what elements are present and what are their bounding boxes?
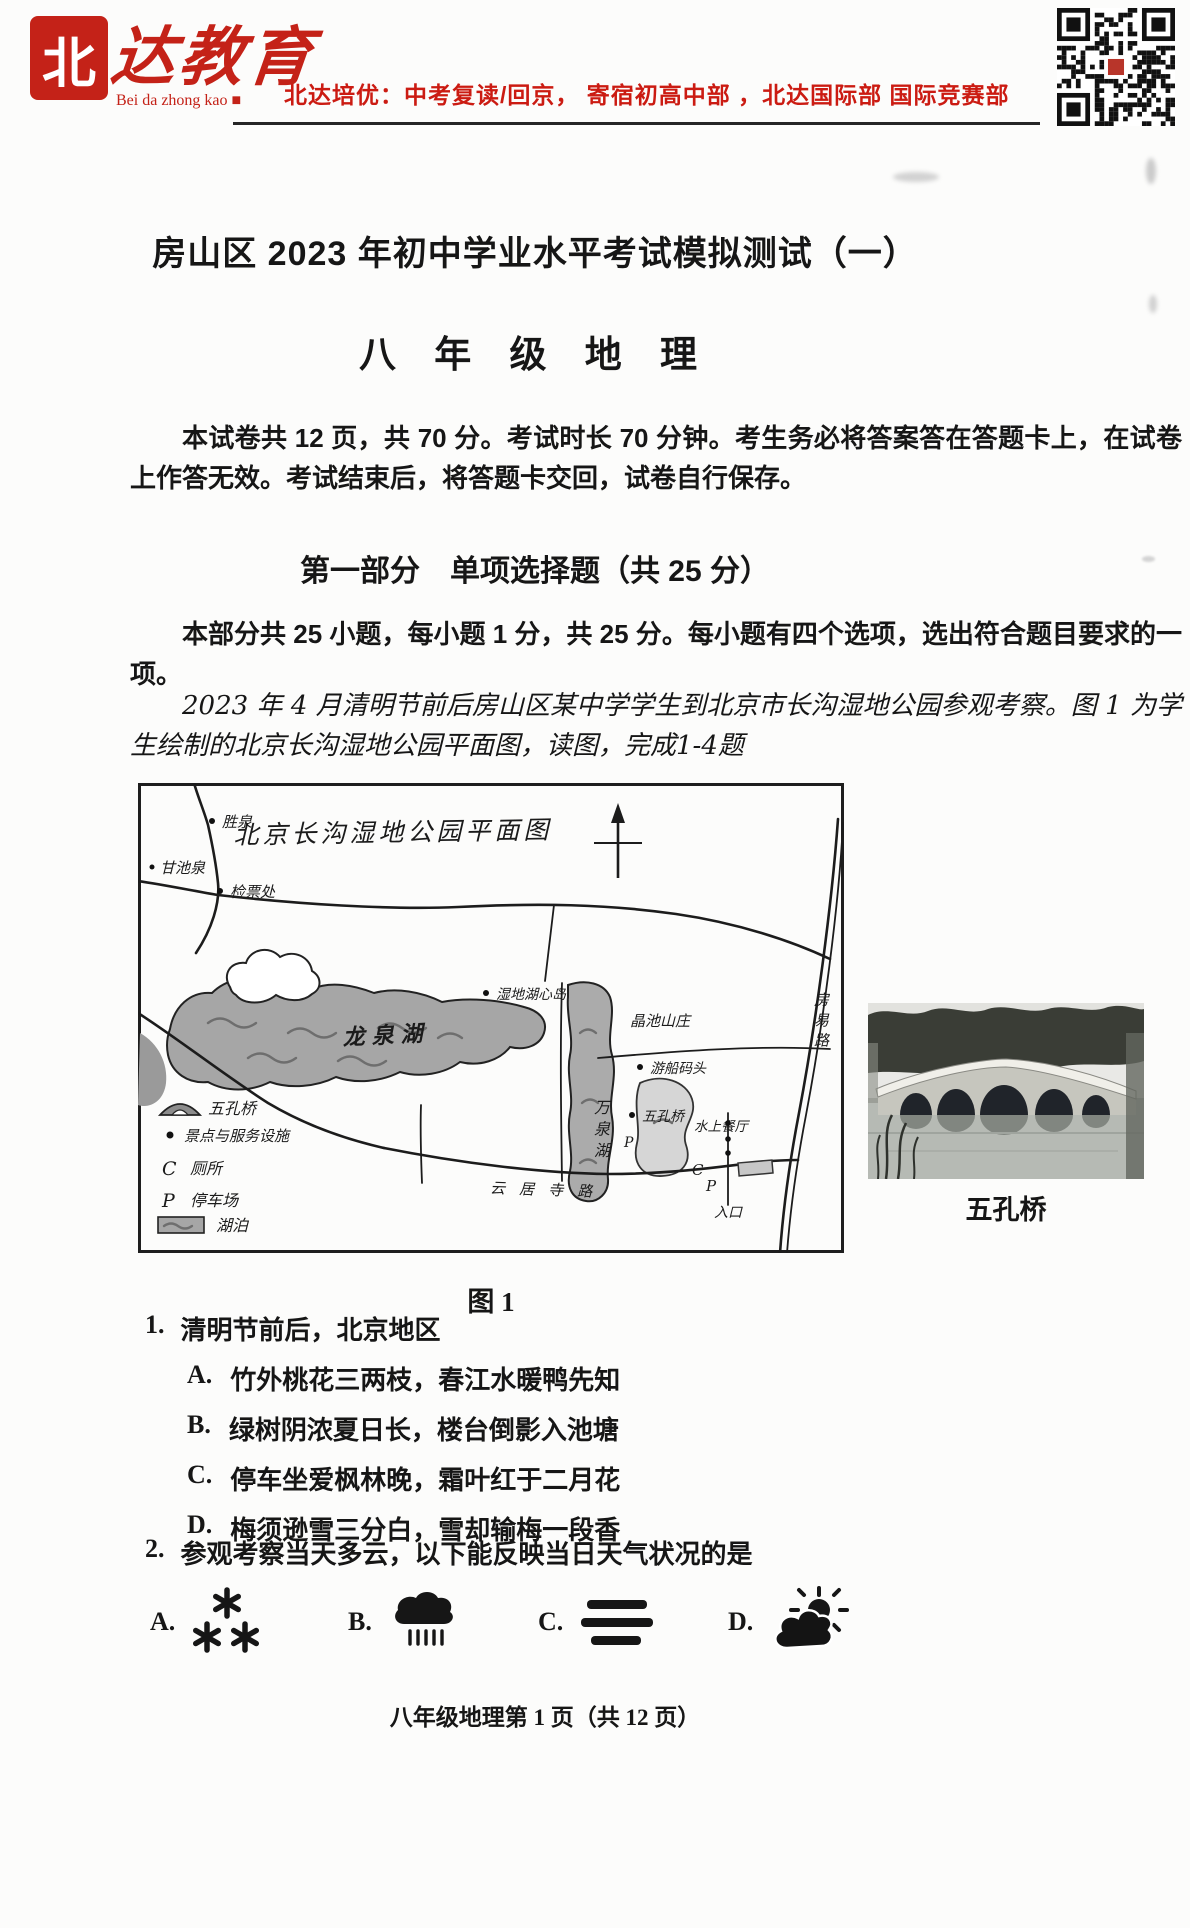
context-paragraph: 2023 年 4 月清明节前后房山区某中学学生到北京市长沟湿地公园参观考察。图 … (130, 686, 1182, 766)
question-1: 1. 清明节前后，北京地区 A. 竹外桃花三两枝，春江水暖鸭先知 B. 绿树阴浓… (145, 1310, 1145, 1547)
legend-toilet-label: 厕所 (190, 1159, 225, 1178)
header-divider (233, 122, 1040, 125)
option-c: C. 停车坐爱枫林晚，霜叶红于二月花 (187, 1460, 1145, 1497)
map-label-ganchi-spring: 甘池泉 (160, 859, 206, 877)
option-a: A. 竹外桃花三两枝，春江水暖鸭先知 (187, 1360, 1145, 1397)
scan-smudge (1146, 158, 1156, 184)
option-text: 竹外桃花三两枝，春江水暖鸭先知 (230, 1360, 620, 1397)
page-footer: 八年级地理第 1 页（共 12 页） (130, 1698, 960, 1732)
map-label-yunjusi-road: 云居寺路 (490, 1179, 607, 1201)
map-label-longquan-lake: 龙泉湖 (342, 1020, 430, 1051)
scan-smudge (1149, 295, 1157, 313)
option-key: B. (348, 1607, 372, 1637)
map-label-ticket-gate: 检票处 (230, 883, 276, 901)
legend-bridge-label: 五孔桥 (208, 1099, 258, 1118)
question-stem: 参观考察当天多云，以下能反映当日天气状况的是 (181, 1534, 753, 1571)
photo-caption: 五孔桥 (868, 1188, 1144, 1227)
legend-poi-label: 景点与服务设施 (184, 1127, 291, 1145)
fog-icon (575, 1586, 659, 1658)
snow-icon (187, 1586, 271, 1658)
boundary (421, 1105, 422, 1183)
scan-smudge (893, 172, 939, 182)
bridge-photo-image (868, 1003, 1144, 1179)
partly-cloudy-icon (765, 1586, 849, 1658)
option-key: D. (728, 1607, 753, 1637)
boundary (598, 1048, 830, 1058)
option-text: 绿树阴浓夏日长，楼台倒影入池塘 (229, 1410, 619, 1447)
map-label-toilet-c: C (692, 1161, 704, 1179)
brand-seal-char: 北 (42, 19, 96, 98)
map-label-five-arch-bridge: 五孔桥 (642, 1109, 686, 1125)
question-number: 2. (145, 1534, 165, 1571)
road (218, 895, 830, 959)
legend-c-icon: C (162, 1158, 177, 1180)
option-b: B. 绿树阴浓夏日长，楼台倒影入池塘 (187, 1410, 1145, 1447)
exam-subject: 八 年 级 地 理 (130, 324, 940, 378)
question-stem: 清明节前后，北京地区 (181, 1310, 441, 1347)
island-shape (227, 950, 320, 1003)
map-label-spring: 胜泉 (222, 813, 253, 831)
map-label-fangyi-road: 房易路 (814, 991, 831, 1050)
map-title: 北京长沟湿地公园平面图 (233, 815, 552, 850)
qr-code (1057, 8, 1175, 126)
scan-smudge (1142, 556, 1155, 562)
map-label-island: 湿地湖心岛 (496, 987, 567, 1003)
rain-icon (384, 1586, 468, 1658)
option-key: C. (187, 1460, 212, 1497)
brand-seal: 北 (30, 16, 108, 100)
question-2: 2. 参观考察当天多云，以下能反映当日天气状况的是 (145, 1534, 1145, 1571)
legend-p-icon: P (161, 1190, 176, 1212)
map-label-villa: 晶池山庄 (630, 1012, 692, 1030)
map-label-entrance: 入口 (714, 1205, 743, 1221)
wanquan-lake-shape (568, 982, 614, 1201)
section-instructions: 本部分共 25 小题，每小题 1 分，共 25 分。每小题有四个选项，选出符合题… (130, 614, 1182, 694)
park-map-figure: 北京长沟湿地公园平面图 胜泉 甘池泉 检票处 龙泉湖 湿地湖心岛 晶池山庄 万泉… (138, 783, 844, 1258)
question-number: 1. (145, 1310, 165, 1347)
option-key: A. (187, 1360, 212, 1397)
exam-page: 北 达教育 Bei da zhong kao ■ 北达培优：中考复读/回京， 寄… (0, 0, 1190, 1928)
option-key: C. (538, 1607, 563, 1637)
legend-parking-label: 停车场 (190, 1191, 240, 1210)
option-key: A. (150, 1607, 175, 1637)
option-text: 停车坐爱枫林晚，霜叶红于二月花 (230, 1460, 620, 1497)
road (138, 881, 218, 895)
exam-instructions: 本试卷共 12 页，共 70 分。考试时长 70 分钟。考生务必将答案答在答题卡… (130, 418, 1182, 498)
legend-dot-icon (167, 1132, 174, 1139)
section-heading: 第一部分 单项选择题（共 25 分） (130, 546, 940, 590)
weather-option-d: D. (728, 1586, 849, 1658)
boundary (545, 905, 554, 981)
road-fangyi (780, 819, 838, 1253)
option-key: B. (187, 1410, 211, 1447)
bridge-photo (868, 1003, 1144, 1184)
weather-option-b: B. (348, 1586, 468, 1658)
map-legend: 五孔桥 景点与服务设施 C 厕所 P 停车场 湖泊 (158, 1099, 291, 1235)
brand-slogan: 北达培优：中考复读/回京， 寄宿初高中部 ，北达国际部 国际竞赛部 (284, 76, 1064, 110)
brand-logo-subtext: Bei da zhong kao ■ (116, 92, 241, 110)
legend-lake-label: 湖泊 (216, 1216, 250, 1235)
pond-shape (636, 1079, 694, 1176)
weather-option-c: C. (538, 1586, 659, 1658)
map-label-boat-dock: 游船码头 (650, 1061, 707, 1077)
map-label-parking-p2: P (705, 1177, 717, 1195)
exam-title: 房山区 2023 年初中学业水平考试模拟测试（一） (130, 226, 940, 275)
map-label-parking-p: P (623, 1135, 634, 1151)
north-arrow-icon (594, 803, 642, 878)
weather-option-a: A. (150, 1586, 271, 1658)
boundary (561, 983, 562, 1181)
map-label-water-restaurant: 水上餐厅 (694, 1119, 750, 1135)
park-map: 北京长沟湿地公园平面图 胜泉 甘池泉 检票处 龙泉湖 湿地湖心岛 晶池山庄 万泉… (138, 783, 844, 1253)
